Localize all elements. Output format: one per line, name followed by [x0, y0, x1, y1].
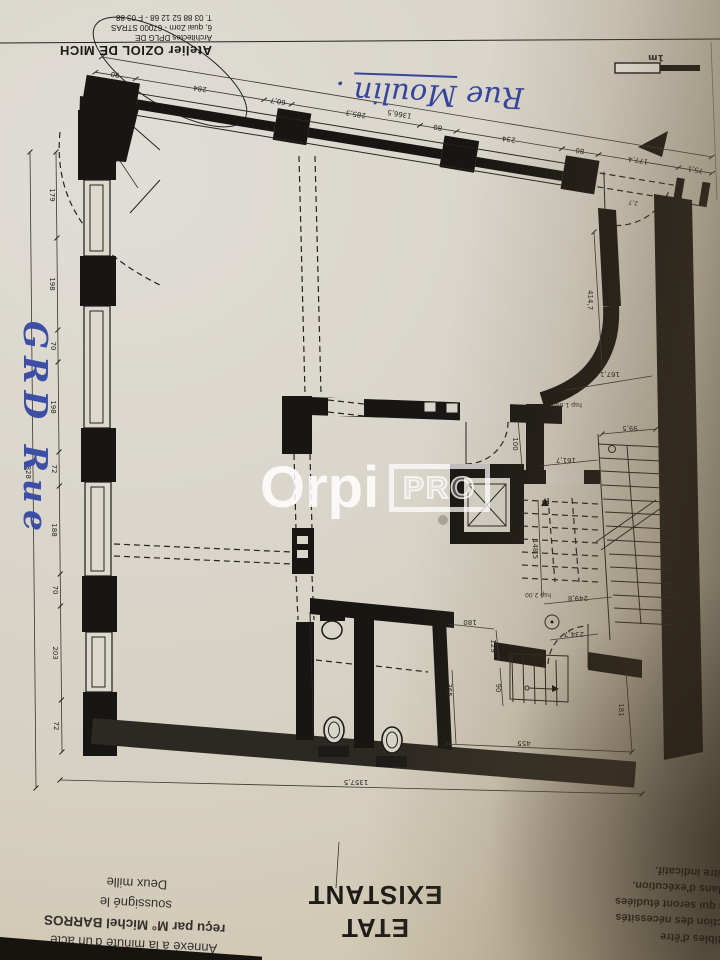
disclaimer-block: on contractuel: ons sont susceptibles d'…: [542, 837, 720, 960]
street-punct: .: [335, 75, 345, 109]
dim-label-179: 179: [48, 188, 56, 201]
architect-profession: Architectes DPLG DE: [0, 33, 212, 42]
wc-rooms: 180 129: [310, 598, 499, 767]
dim-label-door-2-7: 2,7: [628, 198, 639, 206]
window: [84, 180, 110, 256]
dim-label-177-4: 177,4: [627, 154, 649, 165]
dim-label-180: 180: [463, 618, 476, 626]
floor-plan-photo: 1m 129,4 1366,5 90 284 60,7 285,3 80 234: [0, 0, 720, 960]
dim-label-167-1: 167,1: [600, 370, 620, 378]
plan-title-line2: EXISTANT: [298, 879, 452, 912]
dim-label-203: 203: [51, 646, 59, 659]
street-word-2: Moulin: [353, 72, 457, 113]
curved-wall: 414,7 167,1: [542, 208, 652, 400]
dim-label-90b: 90: [494, 684, 502, 693]
scale-bar: 1m: [615, 52, 700, 73]
architect-title-block: Atelier OZIOL DE MICH Architectes DPLG D…: [0, 0, 212, 58]
dim-label-161-7: 161,7: [556, 456, 576, 464]
orpi-watermark: Orpi PRO: [260, 446, 520, 530]
dim-label-72b: 72: [52, 722, 60, 731]
street-left-label: GRD Rue: [16, 321, 55, 538]
dim-label-90: 90: [110, 70, 120, 79]
dim-label-129: 129: [489, 639, 497, 652]
window: [84, 306, 110, 428]
dim-label-455: 455: [517, 739, 530, 747]
dim-label-80b: 80: [575, 146, 585, 155]
pro-badge: PRO: [389, 464, 490, 512]
dim-label-70b: 70: [51, 586, 59, 595]
dim-label-284: 284: [192, 83, 207, 93]
window: [85, 482, 111, 576]
window: [86, 632, 112, 692]
pro-badge-label: PRO: [403, 470, 476, 505]
right-wall: [654, 194, 703, 760]
ceiling-height-label: hsp 1.66m: [550, 401, 582, 408]
dim-label-234-7: 234,7: [564, 630, 584, 638]
handwritten-street-name-top: Rue Moulin .: [304, 46, 556, 117]
dim-label-1357-5: 1357,5: [344, 778, 369, 786]
ceiling-height-label-2: hsp 2.00: [525, 591, 551, 598]
sink-icon: [320, 614, 345, 639]
scale-label: 1m: [648, 52, 664, 62]
meter-circle-icon: [545, 615, 559, 629]
architect-phone: T. 03 88 52 12 68 - F 03 88: [0, 13, 212, 22]
dim-label-365: 365: [445, 683, 453, 696]
dim-label-285-3: 285,3: [345, 108, 366, 119]
dim-label-99-5: 99,5: [622, 424, 638, 432]
dim-label-234: 234: [501, 134, 516, 144]
architect-address: 6, quai Zorn - 67000 STRAS: [0, 23, 212, 32]
dim-label-80a: 80: [433, 123, 443, 132]
main-staircase: 99,5 161,7 148,5 hsp 2.00: [522, 424, 677, 640]
plan-title: ETAT EXISTANT: [298, 872, 452, 944]
plan-title-line1: ETAT: [298, 912, 452, 945]
orpi-logo: Orpi: [260, 459, 379, 517]
dim-label-181: 181: [617, 703, 625, 716]
north-arrow-icon: [638, 131, 668, 157]
dim-label-414-7: 414,7: [586, 290, 594, 310]
dim-label-249-8: 249,8: [568, 594, 588, 602]
dim-label-148-5: 148,5: [531, 539, 539, 559]
dim-label-75-1: 75,1: [687, 164, 704, 174]
left-wall: [78, 96, 140, 756]
dim-label-60-7: 60,7: [270, 96, 287, 106]
handwritten-street-name-left: GRD Rue: [0, 297, 55, 562]
street-word-1: Rue: [465, 79, 524, 115]
dim-label-198a: 198: [48, 277, 56, 290]
architect-name: Atelier OZIOL DE MICH: [0, 43, 212, 58]
